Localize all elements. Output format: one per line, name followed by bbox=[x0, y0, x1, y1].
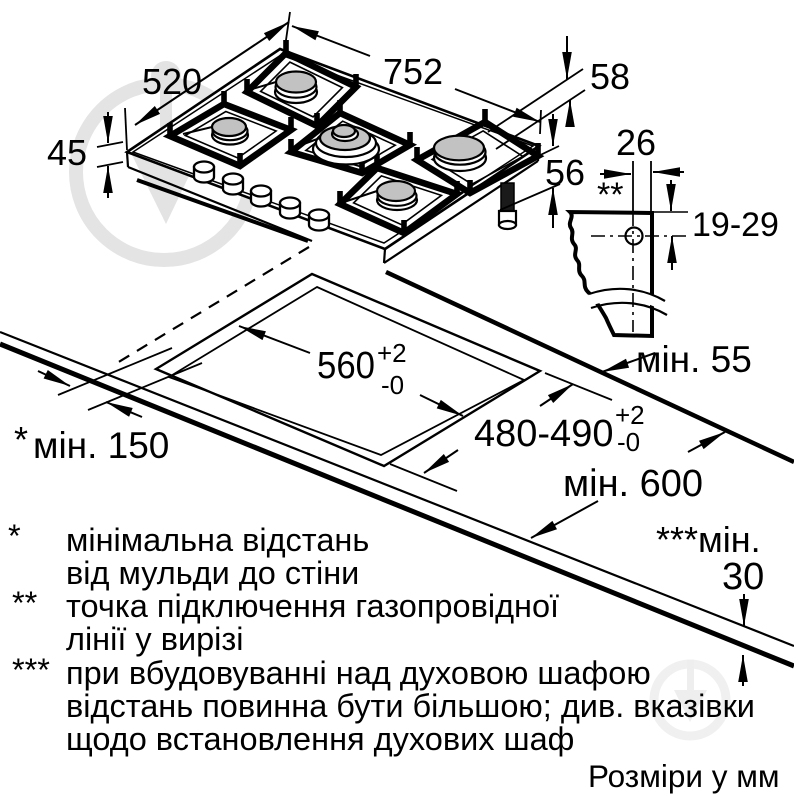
svg-text:30: 30 bbox=[722, 556, 764, 598]
svg-text:мінімальна відстань: мінімальна відстань bbox=[66, 522, 369, 558]
svg-text:***мін.: ***мін. bbox=[656, 519, 761, 560]
svg-text:лінії у вирізі: лінії у вирізі bbox=[66, 621, 244, 657]
svg-text:56: 56 bbox=[545, 152, 585, 193]
svg-text:від мульди до стіни: від мульди до стіни bbox=[66, 555, 359, 591]
svg-text:***: *** bbox=[12, 652, 50, 688]
svg-text:Розміри у мм: Розміри у мм bbox=[588, 758, 780, 794]
svg-text:мін. 55: мін. 55 bbox=[636, 339, 752, 380]
svg-text:520: 520 bbox=[142, 61, 202, 102]
svg-text:**: ** bbox=[12, 585, 38, 621]
svg-text:560: 560 bbox=[317, 345, 375, 387]
svg-text:19-29: 19-29 bbox=[692, 206, 779, 244]
svg-text:480-490: 480-490 bbox=[474, 413, 613, 455]
svg-text:26: 26 bbox=[616, 122, 656, 163]
svg-text:-0: -0 bbox=[381, 370, 404, 400]
svg-text:**: ** bbox=[597, 176, 623, 214]
svg-text:*: * bbox=[8, 518, 21, 554]
svg-text:+2: +2 bbox=[615, 400, 645, 430]
svg-text:відстань повинна бути більшою;: відстань повинна бути більшою; див. вказ… bbox=[66, 688, 755, 724]
svg-text:+2: +2 bbox=[377, 338, 407, 368]
svg-text:-0: -0 bbox=[617, 427, 640, 457]
svg-text:752: 752 bbox=[383, 51, 443, 92]
svg-text:мін. 600: мін. 600 bbox=[563, 463, 703, 505]
svg-text:щодо встановлення духових шаф: щодо встановлення духових шаф bbox=[66, 721, 574, 757]
svg-text:при вбудовуванні над духовою ш: при вбудовуванні над духовою шафою bbox=[66, 655, 651, 691]
svg-text:мін. 150: мін. 150 bbox=[33, 425, 169, 466]
svg-text:45: 45 bbox=[47, 132, 87, 173]
svg-text:*: * bbox=[14, 419, 28, 460]
svg-text:58: 58 bbox=[590, 56, 630, 97]
svg-text:точка підключення газопровідно: точка підключення газопровідної bbox=[66, 588, 559, 624]
